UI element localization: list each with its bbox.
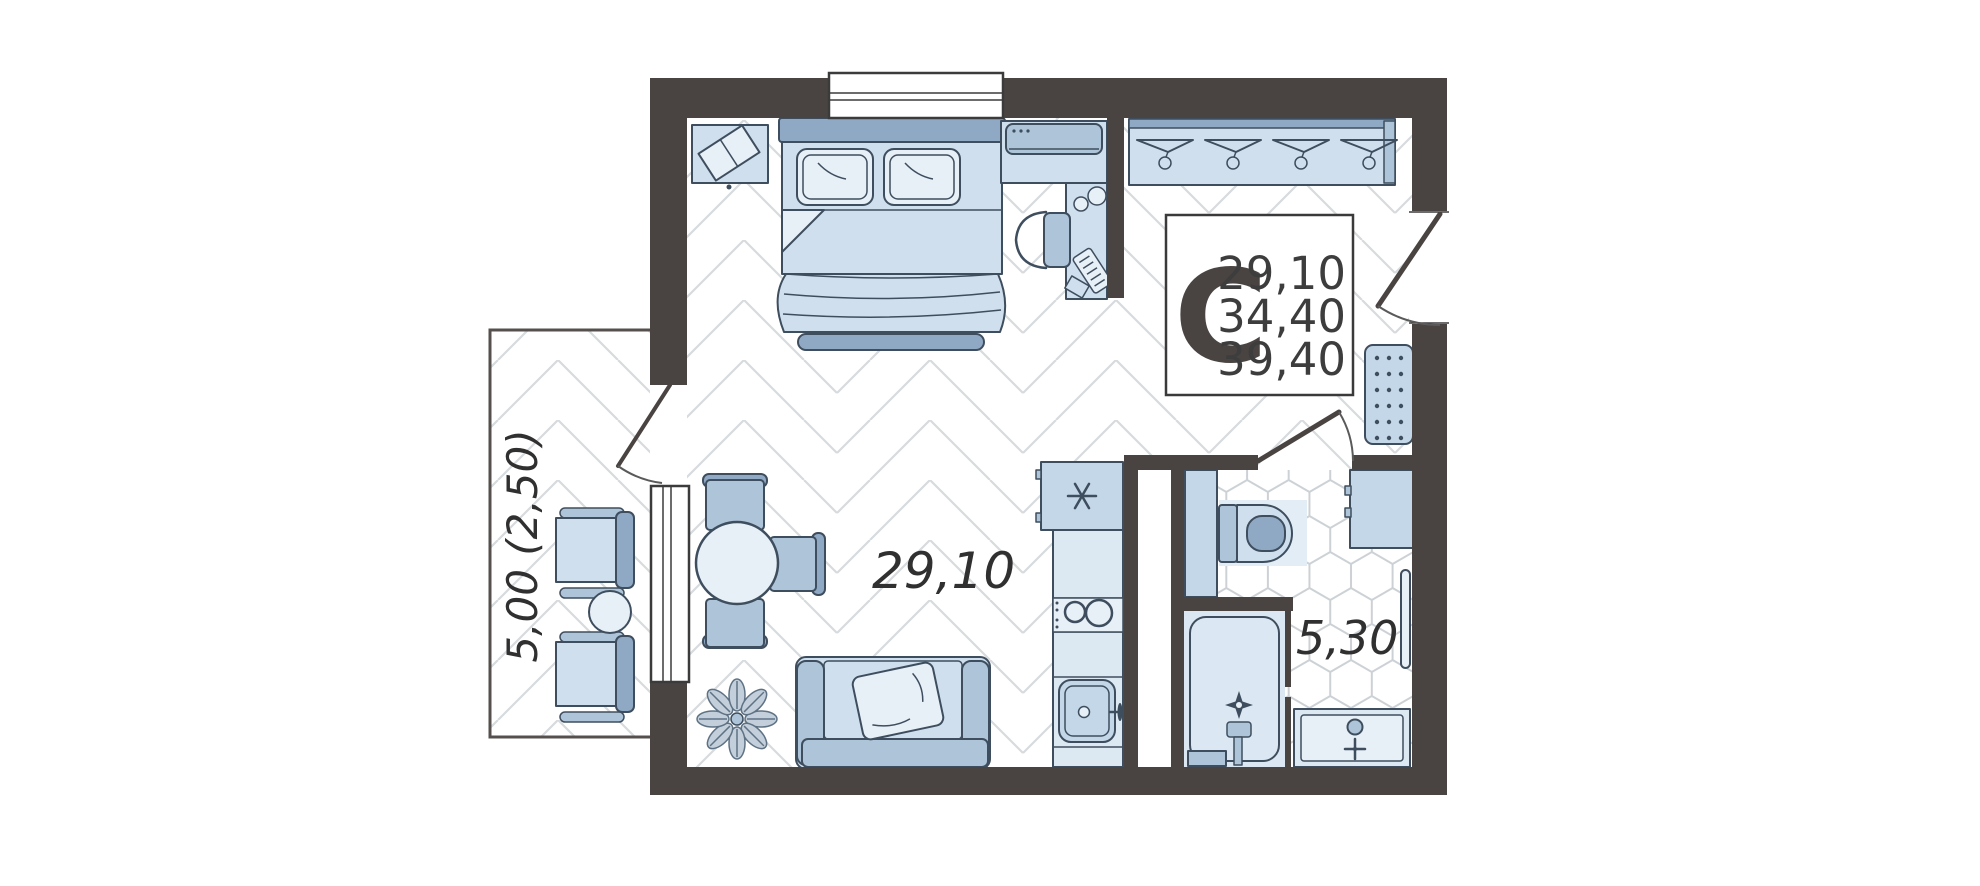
wall-bathroom-top-left (1124, 455, 1258, 470)
blanket-end (778, 274, 1006, 332)
floor-plan: 29,10 5,30 5,00 (2,50) С 29,10 34,40 39,… (0, 0, 1980, 886)
bathroom-area-label: 5,30 (1296, 611, 1398, 665)
balcony-area-label: 5,00 (2,50) (498, 429, 547, 662)
wardrobe (1129, 119, 1397, 185)
wall-top (650, 78, 1447, 118)
total-area-value: 39,40 (1217, 333, 1346, 386)
pillow (884, 149, 960, 205)
sofa-seat (802, 739, 988, 767)
wall-hallway-stub (1107, 78, 1124, 298)
wall-bottom (650, 767, 1447, 795)
wardrobe-side (1384, 121, 1395, 183)
plant (697, 679, 777, 759)
shower (1184, 611, 1291, 767)
cup-icon (1088, 187, 1106, 205)
toilet (1219, 500, 1307, 566)
side-table (589, 591, 631, 633)
shower-step (1188, 751, 1226, 766)
floor-plan-canvas: 29,10 5,30 5,00 (2,50) С 29,10 34,40 39,… (0, 0, 1980, 886)
sofa (796, 657, 990, 769)
wardrobe-rail (1129, 119, 1395, 128)
dining-chair (703, 599, 767, 648)
bed-foot-bench (798, 334, 984, 350)
wall-left-upper (650, 118, 687, 385)
faucet-icon (1348, 720, 1363, 735)
dining-table (696, 522, 778, 604)
kitchen-sink (1059, 680, 1123, 742)
bathroom-cabinet (1185, 470, 1217, 597)
living-room-area-label: 29,10 (872, 542, 1015, 600)
wall-kitchen (1124, 455, 1138, 767)
toilet-tank (1219, 505, 1237, 562)
balcony-window (651, 486, 689, 682)
double-bed (778, 118, 1006, 350)
duct-shaft (1138, 470, 1171, 767)
washing-machine (1345, 470, 1416, 548)
main-window (829, 73, 1003, 118)
towel-radiator (1401, 570, 1410, 668)
wall-left-lower (650, 681, 687, 767)
wall-bathroom-top-right (1352, 455, 1412, 470)
drain-icon (1079, 707, 1090, 718)
wall-right (1412, 78, 1447, 795)
nightstand (692, 125, 768, 190)
cup-icon (1074, 197, 1088, 211)
info-box: С 29,10 34,40 39,40 (1166, 215, 1353, 395)
pillow (797, 149, 873, 205)
fridge (1036, 462, 1123, 530)
radiator (1365, 345, 1413, 444)
bed-headboard (779, 118, 1005, 142)
wall-shower (1177, 597, 1293, 611)
sink-vanity (1294, 709, 1410, 767)
shower-mixer (1227, 722, 1251, 737)
